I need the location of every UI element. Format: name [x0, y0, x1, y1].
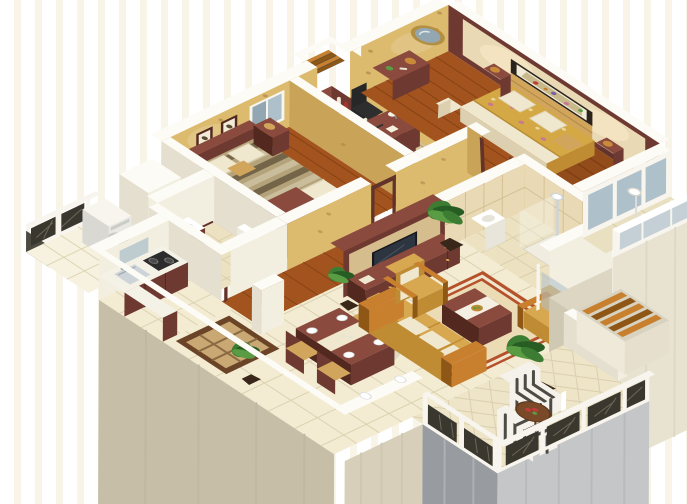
apartment-3d-svg [0, 0, 687, 504]
floor-plan-render [0, 0, 687, 504]
isometric-scene [0, 0, 687, 504]
